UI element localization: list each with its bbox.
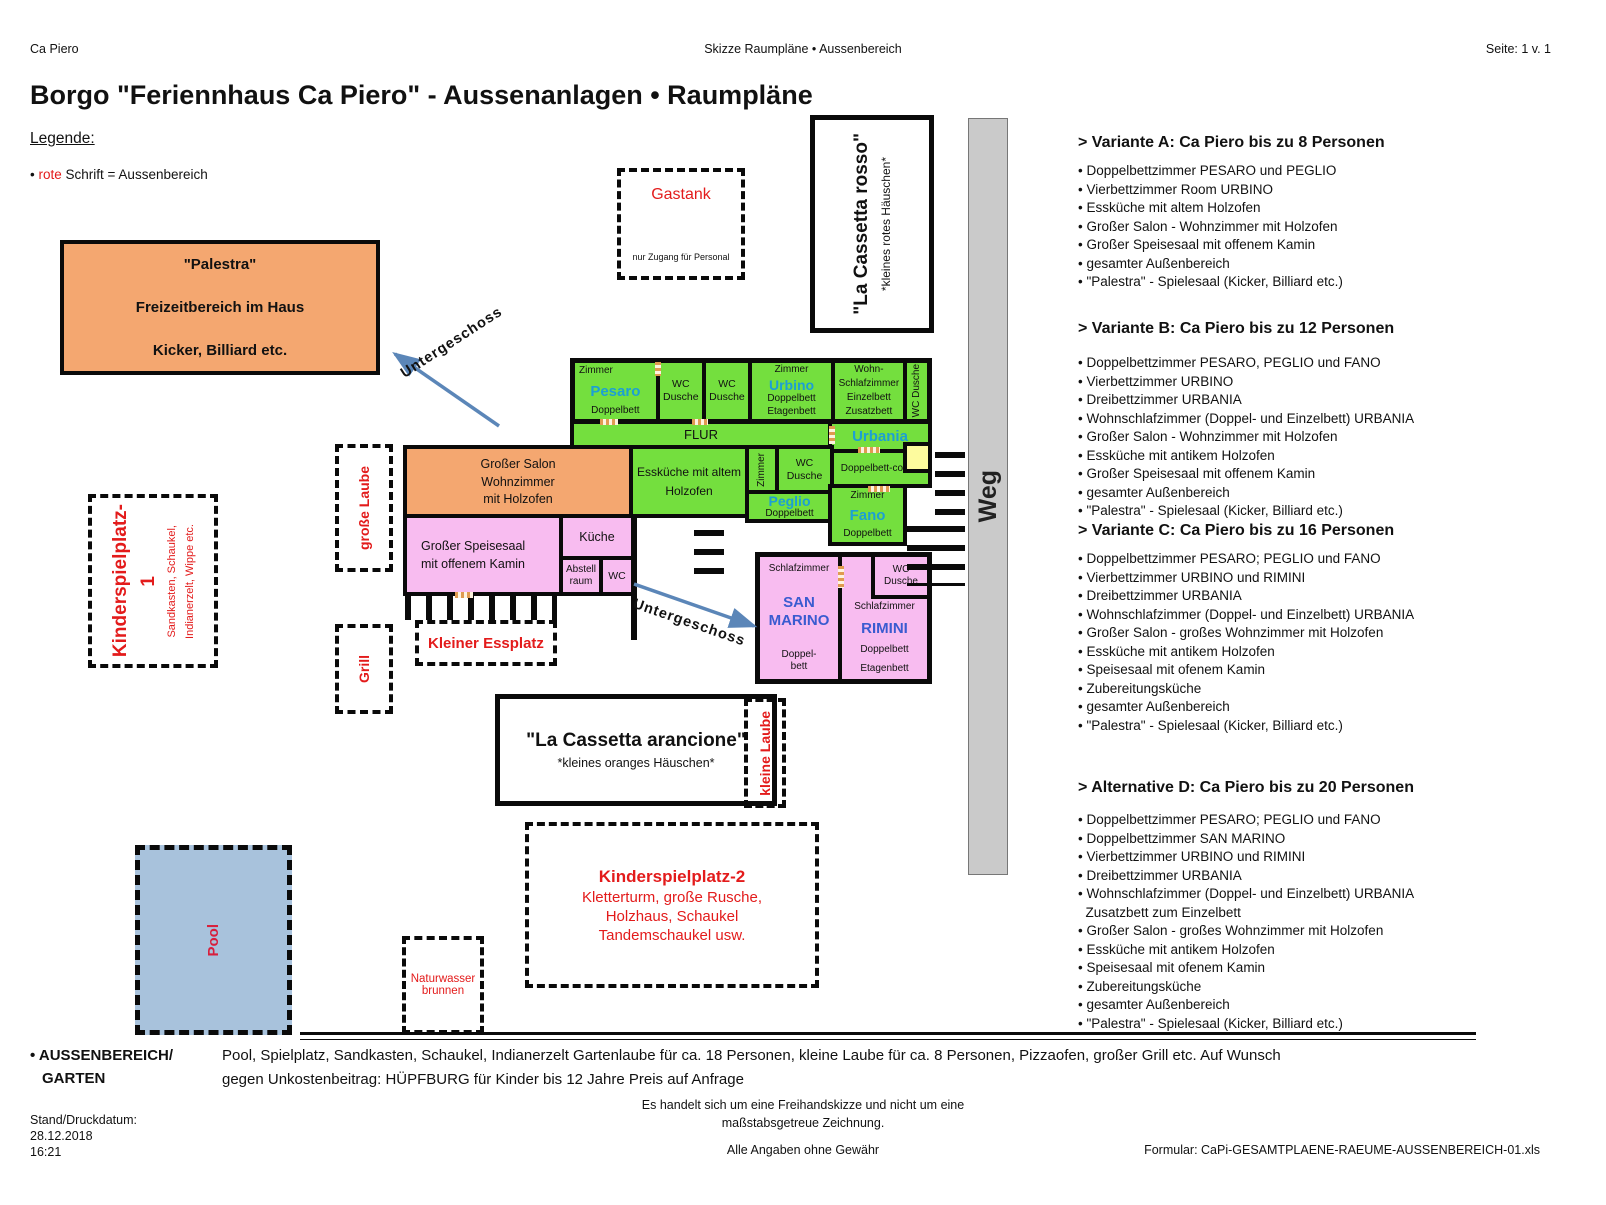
legend-heading: Legende:	[30, 130, 95, 148]
palestra-box: "Palestra" Freizeitbereich im Haus Kicke…	[60, 240, 380, 375]
room-grosser-salon: Großer Salon Wohnzimmer mit Holzofen	[403, 445, 633, 518]
cassetta-arancione-title: "La Cassetta arancione"	[526, 730, 746, 752]
list-item: Großer Speisesaal mit offenem Kamin	[1078, 236, 1518, 255]
wohn-l3: Einzelbett	[847, 392, 891, 404]
door-marker	[858, 447, 880, 453]
variant-b-list: Doppelbettzimmer PESARO, PEGLIO und FANO…	[1078, 354, 1518, 521]
zimmer-strip: Zimmer	[745, 445, 779, 494]
room-wc-2: WC Dusche	[706, 363, 748, 419]
wc3-label: WC Dusche	[911, 364, 923, 417]
urbino-type: Zimmer	[775, 364, 809, 376]
wc2-l2: Dusche	[709, 391, 745, 404]
wc1-l1: WC	[672, 378, 690, 391]
kinderspielplatz1-box: Kinderspielplatz- 1 Sandkasten, Schaukel…	[88, 494, 218, 668]
room-wc-1: WC Dusche	[660, 363, 702, 419]
stairs-east-lower	[907, 526, 965, 586]
urbania-name: Urbania	[852, 428, 908, 445]
kinderspielplatz1-title: Kinderspielplatz-	[110, 504, 132, 657]
urbino-name: Urbino	[769, 377, 814, 393]
fano-name: Fano	[850, 507, 886, 524]
room-wohnschlafzimmer: Wohn- Schlafzimmer Einzelbett Zusatzbett	[835, 363, 903, 419]
wc1-l2: Dusche	[663, 391, 699, 404]
list-item: Speisesaal mit ofenem Kamin	[1078, 959, 1518, 978]
aussenbereich-label-l2: GARTEN	[30, 1067, 173, 1090]
kinderspielplatz1-sub1: Sandkasten, Schaukel,	[166, 525, 178, 638]
pergola-posts	[405, 596, 557, 620]
list-item: Doppelbettzimmer PESARO, PEGLIO und FANO	[1078, 354, 1518, 373]
naturwasser-l1: Naturwasser	[411, 973, 476, 985]
list-item: "Palestra" - Spielesaal (Kicker, Billiar…	[1078, 273, 1518, 292]
list-item: "Palestra" - Spielesaal (Kicker, Billiar…	[1078, 502, 1518, 521]
list-item: gesamter Außenbereich	[1078, 255, 1518, 274]
list-item: Großer Salon - großes Wohnzimmer mit Hol…	[1078, 624, 1518, 643]
yellow-highlight-box	[903, 442, 932, 473]
list-item: Großer Salon - Wohnzimmer mit Holzofen	[1078, 218, 1518, 237]
flur-label: FLUR	[684, 427, 718, 442]
list-item: Großer Salon - Wohnzimmer mit Holzofen	[1078, 428, 1518, 447]
kinderspielplatz2-title: Kinderspielplatz-2	[599, 867, 745, 887]
rimini-name: RIMINI	[861, 620, 908, 637]
peglio-bed: Doppelbett	[765, 508, 813, 520]
pool-box: Pool	[135, 845, 292, 1035]
variant-d-heading: > Alternative D: Ca Piero bis zu 20 Pers…	[1078, 779, 1518, 797]
cassetta-arancione-sub: *kleines oranges Häuschen*	[557, 756, 714, 770]
grosse-laube-label: große Laube	[356, 466, 372, 550]
list-item: Großer Speisesaal mit offenem Kamin	[1078, 465, 1518, 484]
sanmarino-bed: Doppel-bett	[781, 649, 816, 673]
salon-l1: Großer Salon	[480, 457, 555, 471]
fano-bed: Doppelbett	[843, 528, 891, 540]
speisesaal-l1: Großer Speisesaal	[421, 539, 559, 553]
list-item: gesamter Außenbereich	[1078, 698, 1518, 717]
esskueche-l2: Holzofen	[665, 484, 712, 498]
palestra-line3: Kicker, Billiard etc.	[153, 342, 287, 359]
aussenbereich-body: Pool, Spielplatz, Sandkasten, Schaukel, …	[222, 1044, 1492, 1092]
list-item: Wohnschlafzimmer (Doppel- und Einzelbett…	[1078, 606, 1518, 625]
wc4-l2: Dusche	[787, 470, 823, 483]
kinderspielplatz2-l3: Tandemschaukel usw.	[599, 927, 746, 944]
urbino-bed1: Doppelbett	[767, 393, 815, 405]
list-item: Essküche mit antikem Holzofen	[1078, 643, 1518, 662]
rimini-bed1: Doppelbett	[860, 644, 908, 656]
cassetta-rosso-box: "La Cassetta rosso" *kleines rotes Häusc…	[810, 115, 934, 333]
variant-c-section: > Variante C: Ca Piero bis zu 16 Persone…	[1078, 522, 1518, 735]
list-item: Doppelbettzimmer SAN MARINO	[1078, 830, 1518, 849]
upper-rooms-block: Zimmer Pesaro Doppelbett WC Dusche WC Du…	[570, 358, 932, 424]
list-item: Zubereitungsküche	[1078, 680, 1518, 699]
speisesaal-l2: mit offenem Kamin	[421, 557, 559, 571]
variant-c-list: Doppelbettzimmer PESARO; PEGLIO und FANO…	[1078, 550, 1518, 735]
list-item: gesamter Außenbereich	[1078, 996, 1518, 1015]
palestra-title: "Palestra"	[184, 256, 257, 273]
pesaro-bed: Doppelbett	[591, 405, 639, 417]
room-kueche: Küche	[559, 514, 635, 560]
peglio-name: Peglio	[768, 494, 810, 508]
untergeschoss-arrow-left	[383, 344, 508, 432]
list-item: Doppelbettzimmer PESARO; PEGLIO und FANO	[1078, 811, 1518, 830]
header-center: Skizze Raumpläne • Aussenbereich	[0, 42, 1606, 56]
print-date: 28.12.2018	[30, 1128, 137, 1144]
salon-l3: mit Holzofen	[483, 492, 552, 506]
wohn-l2: Schlafzimmer	[839, 378, 900, 390]
aussenbereich-body-l2: gegen Unkostenbeitrag: HÜPFBURG für Kind…	[222, 1068, 1492, 1092]
list-item: Essküche mit antikem Holzofen	[1078, 447, 1518, 466]
sanmarino-name: SANMARINO	[769, 594, 830, 630]
rimini-type: Schlafzimmer	[854, 601, 915, 613]
door-marker	[829, 426, 835, 444]
legend-rest: Schrift = Aussenbereich	[66, 167, 208, 182]
disclaimer-l1: Es handelt sich um eine Freihandskizze u…	[0, 1096, 1606, 1114]
gastank-box: Gastank nur Zugang für Personal	[617, 168, 745, 280]
room-speisesaal: Großer Speisesaal mit offenem Kamin	[403, 514, 563, 596]
variant-a-section: > Variante A: Ca Piero bis zu 8 Personen…	[1078, 134, 1518, 292]
list-item-continuation: Zusatzbett zum Einzelbett	[1078, 904, 1518, 923]
kleine-laube-label: kleine Laube	[757, 711, 773, 796]
room-wc-4: WC Dusche	[775, 445, 834, 494]
naturwasserbrunnen-box: Naturwasser brunnen	[402, 936, 484, 1034]
variant-b-section: > Variante B: Ca Piero bis zu 12 Persone…	[1078, 320, 1518, 521]
list-item: Doppelbettzimmer PESARO; PEGLIO und FANO	[1078, 550, 1518, 569]
footer-divider	[300, 1032, 1476, 1040]
document-page: Ca Piero Skizze Raumpläne • Aussenbereic…	[0, 0, 1606, 1205]
kinderspielplatz2-l1: Kletterturm, große Rusche,	[582, 889, 762, 906]
sanmarino-type: Schlafzimmer	[769, 563, 830, 575]
esskueche-l1: Essküche mit altem	[637, 465, 741, 479]
list-item: Doppelbettzimmer PESARO und PEGLIO	[1078, 162, 1518, 181]
wc2-l1: WC	[718, 378, 736, 391]
list-item: Essküche mit altem Holzofen	[1078, 199, 1518, 218]
list-item: "Palestra" - Spielesaal (Kicker, Billiar…	[1078, 717, 1518, 736]
cassetta-arancione-box: "La Cassetta arancione" *kleines oranges…	[495, 694, 777, 806]
cassetta-rosso-title: "La Cassetta rosso"	[851, 133, 873, 315]
cassetta-rosso-sub: *kleines rotes Häuschen*	[879, 157, 893, 291]
pool-label: Pool	[205, 924, 222, 957]
list-item: Vierbettzimmer Room URBINO	[1078, 181, 1518, 200]
kinderspielplatz2-box: Kinderspielplatz-2 Kletterturm, große Ru…	[525, 822, 819, 988]
list-item: Dreibettzimmer URBANIA	[1078, 391, 1518, 410]
aussenbereich-body-l1: Pool, Spielplatz, Sandkasten, Schaukel, …	[222, 1044, 1492, 1068]
list-item: Vierbettzimmer URBINO und RIMINI	[1078, 848, 1518, 867]
room-pesaro: Zimmer Pesaro Doppelbett	[575, 363, 656, 419]
variant-d-list: Doppelbettzimmer PESARO; PEGLIO und FANO…	[1078, 811, 1518, 1033]
door-marker	[868, 486, 890, 492]
door-marker	[600, 419, 618, 425]
list-item: Vierbettzimmer URBINO	[1078, 373, 1518, 392]
door-marker	[455, 592, 473, 598]
variant-c-heading: > Variante C: Ca Piero bis zu 16 Persone…	[1078, 522, 1518, 540]
variant-a-list: Doppelbettzimmer PESARO und PEGLIO Vierb…	[1078, 162, 1518, 292]
wc5-label: WC	[608, 570, 626, 583]
kleine-laube-box: kleine Laube	[744, 698, 786, 808]
list-item: "Palestra" - Spielesaal (Kicker, Billiar…	[1078, 1015, 1518, 1034]
room-urbino: Zimmer Urbino Doppelbett Etagenbett	[752, 363, 831, 419]
legend-line: • rote Schrift = Aussenbereich	[30, 167, 208, 182]
formular-reference: Formular: CaPi-GESAMTPLAENE-RAEUME-AUSSE…	[1144, 1143, 1540, 1157]
kinderspielplatz1-sub2: Indianerzelt, Wippe etc.	[184, 524, 196, 639]
wohn-l1: Wohn-	[854, 364, 883, 376]
page-title: Borgo "Feriennhaus Ca Piero" - Aussenanl…	[30, 80, 813, 111]
grill-box: Grill	[335, 624, 393, 714]
room-wc-3: WC Dusche	[907, 363, 927, 419]
salon-l2: Wohnzimmer	[481, 475, 554, 489]
weg-strip: Weg	[968, 118, 1008, 875]
list-item: Wohnschlafzimmer (Doppel- und Einzelbett…	[1078, 410, 1518, 429]
legend-bullet: •	[30, 167, 35, 182]
stairs-east-upper	[935, 452, 965, 520]
list-item: Essküche mit antikem Holzofen	[1078, 941, 1518, 960]
kinderspielplatz2-l2: Holzhaus, Schaukel	[606, 908, 739, 925]
sketch-disclaimer: Es handelt sich um eine Freihandskizze u…	[0, 1096, 1606, 1132]
rimini-bed2: Etagenbett	[860, 663, 908, 675]
wohn-l4: Zusatzbett	[846, 406, 893, 418]
pesaro-name: Pesaro	[590, 383, 640, 400]
door-marker	[838, 566, 844, 588]
palestra-line2: Freizeitbereich im Haus	[136, 299, 304, 316]
aussenbereich-label-l1: • AUSSENBEREICH/	[30, 1044, 173, 1067]
list-item: Großer Salon - großes Wohnzimmer mit Hol…	[1078, 922, 1518, 941]
wc4-l1: WC	[796, 457, 814, 470]
list-item: gesamter Außenbereich	[1078, 484, 1518, 503]
list-item: Vierbettzimmer URBINO und RIMINI	[1078, 569, 1518, 588]
grosse-laube-box: große Laube	[335, 444, 393, 572]
variant-a-heading: > Variante A: Ca Piero bis zu 8 Personen	[1078, 134, 1518, 152]
kinderspielplatz1-number: 1	[138, 576, 160, 587]
legend-red-word: rote	[39, 167, 62, 182]
naturwasser-l2: brunnen	[422, 985, 464, 997]
stand-label: Stand/Druckdatum:	[30, 1112, 137, 1128]
variant-d-section: > Alternative D: Ca Piero bis zu 20 Pers…	[1078, 779, 1518, 1033]
abstell-l2: raum	[570, 576, 593, 588]
abstell-l1: Abstell	[566, 564, 596, 576]
door-marker	[692, 419, 708, 425]
room-abstellraum: Abstell raum	[559, 556, 603, 596]
grill-label: Grill	[356, 655, 372, 683]
weg-label: Weg	[974, 470, 1003, 522]
variant-b-heading: > Variante B: Ca Piero bis zu 12 Persone…	[1078, 320, 1518, 338]
zimmer-strip-label: Zimmer	[756, 453, 768, 487]
list-item: Speisesaal mit ofenem Kamin	[1078, 661, 1518, 680]
gastank-title: Gastank	[651, 186, 711, 204]
list-item: Zubereitungsküche	[1078, 978, 1518, 997]
door-marker	[655, 362, 661, 376]
kueche-label: Küche	[579, 530, 614, 544]
room-esskueche: Essküche mit altem Holzofen	[629, 445, 749, 518]
header-right: Seite: 1 v. 1	[1486, 42, 1551, 56]
room-peglio: Peglio Doppelbett	[745, 490, 834, 523]
list-item: Dreibettzimmer URBANIA	[1078, 587, 1518, 606]
kleiner-essplatz-box: Kleiner Essplatz	[415, 620, 557, 666]
room-san-marino: Schlafzimmer SANMARINO Doppel-bett	[760, 557, 838, 679]
courtyard-steps	[694, 530, 724, 580]
urbino-bed2: Etagenbett	[767, 406, 815, 418]
disclaimer-l2: maßstabsgetreue Zeichnung.	[0, 1114, 1606, 1132]
room-fano: Zimmer Fano Doppelbett	[828, 484, 907, 546]
kleiner-essplatz-label: Kleiner Essplatz	[428, 635, 544, 652]
list-item: Dreibettzimmer URBANIA	[1078, 867, 1518, 886]
list-item: Wohnschlafzimmer (Doppel- und Einzelbett…	[1078, 885, 1518, 904]
rimini-labels: Schlafzimmer RIMINI Doppelbett Etagenbet…	[842, 601, 927, 675]
gastank-note: nur Zugang für Personal	[632, 252, 729, 262]
pesaro-type: Zimmer	[575, 365, 613, 377]
aussenbereich-label: • AUSSENBEREICH/ GARTEN	[30, 1044, 173, 1090]
